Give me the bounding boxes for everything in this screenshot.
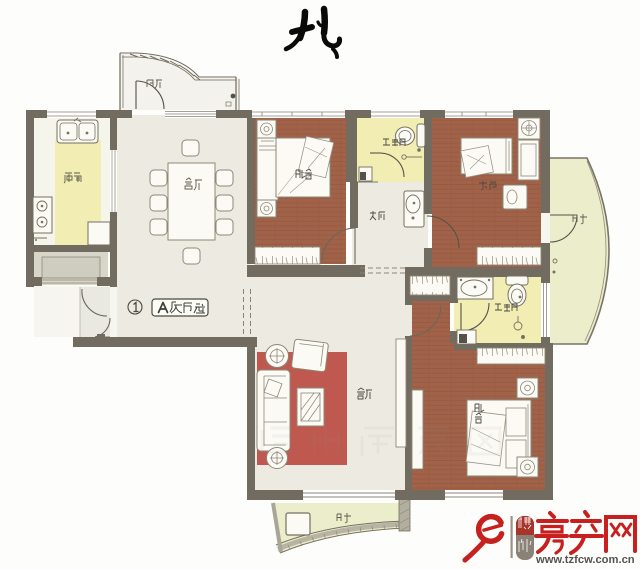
svg-text:www.tzfcw.com.cn: www.tzfcw.com.cn xyxy=(535,554,635,566)
